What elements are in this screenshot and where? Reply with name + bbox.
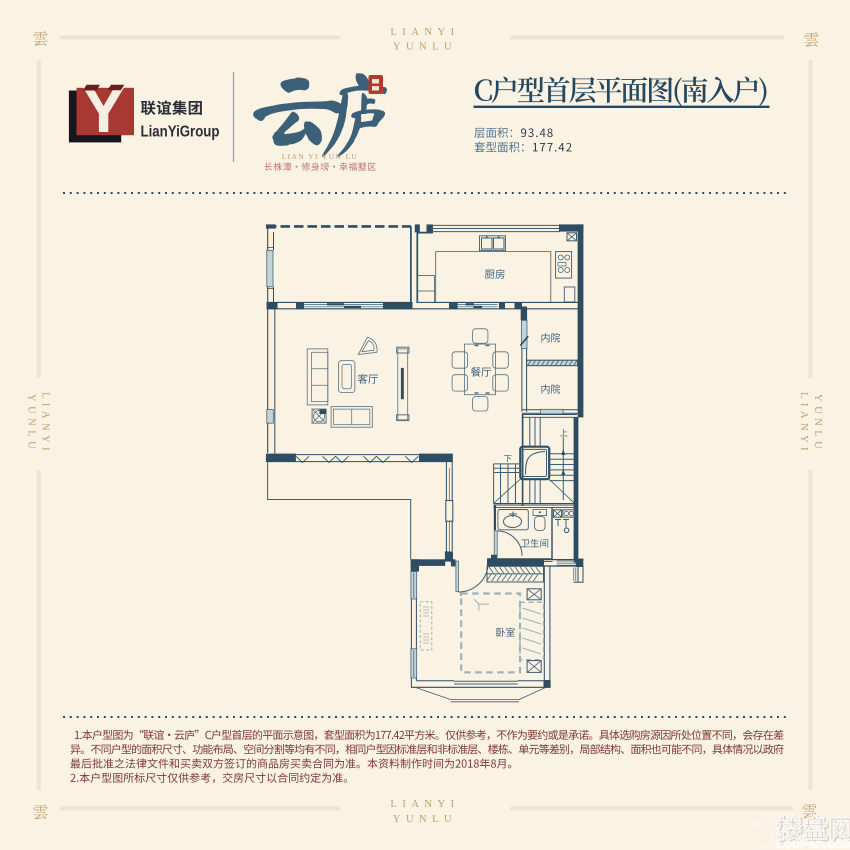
svg-text:LIAN YI YUN LU: LIAN YI YUN LU <box>282 152 359 161</box>
svg-text:LIANYI: LIANYI <box>798 392 809 455</box>
svg-text:LIANYI: LIANYI <box>40 392 51 455</box>
svg-text:LIANYI: LIANYI <box>390 799 459 810</box>
svg-text:YUNLU: YUNLU <box>26 394 37 453</box>
svg-text:Y: Y <box>82 73 125 146</box>
svg-text:LIANYI: LIANYI <box>390 27 459 38</box>
svg-text:YUNLU: YUNLU <box>812 394 823 453</box>
svg-text:YUNLU: YUNLU <box>393 42 457 53</box>
svg-text:LianYiGroup: LianYiGroup <box>141 124 220 141</box>
svg-text:YUNLU: YUNLU <box>393 814 457 825</box>
svg-text:LouPan.com: LouPan.com <box>776 836 850 850</box>
